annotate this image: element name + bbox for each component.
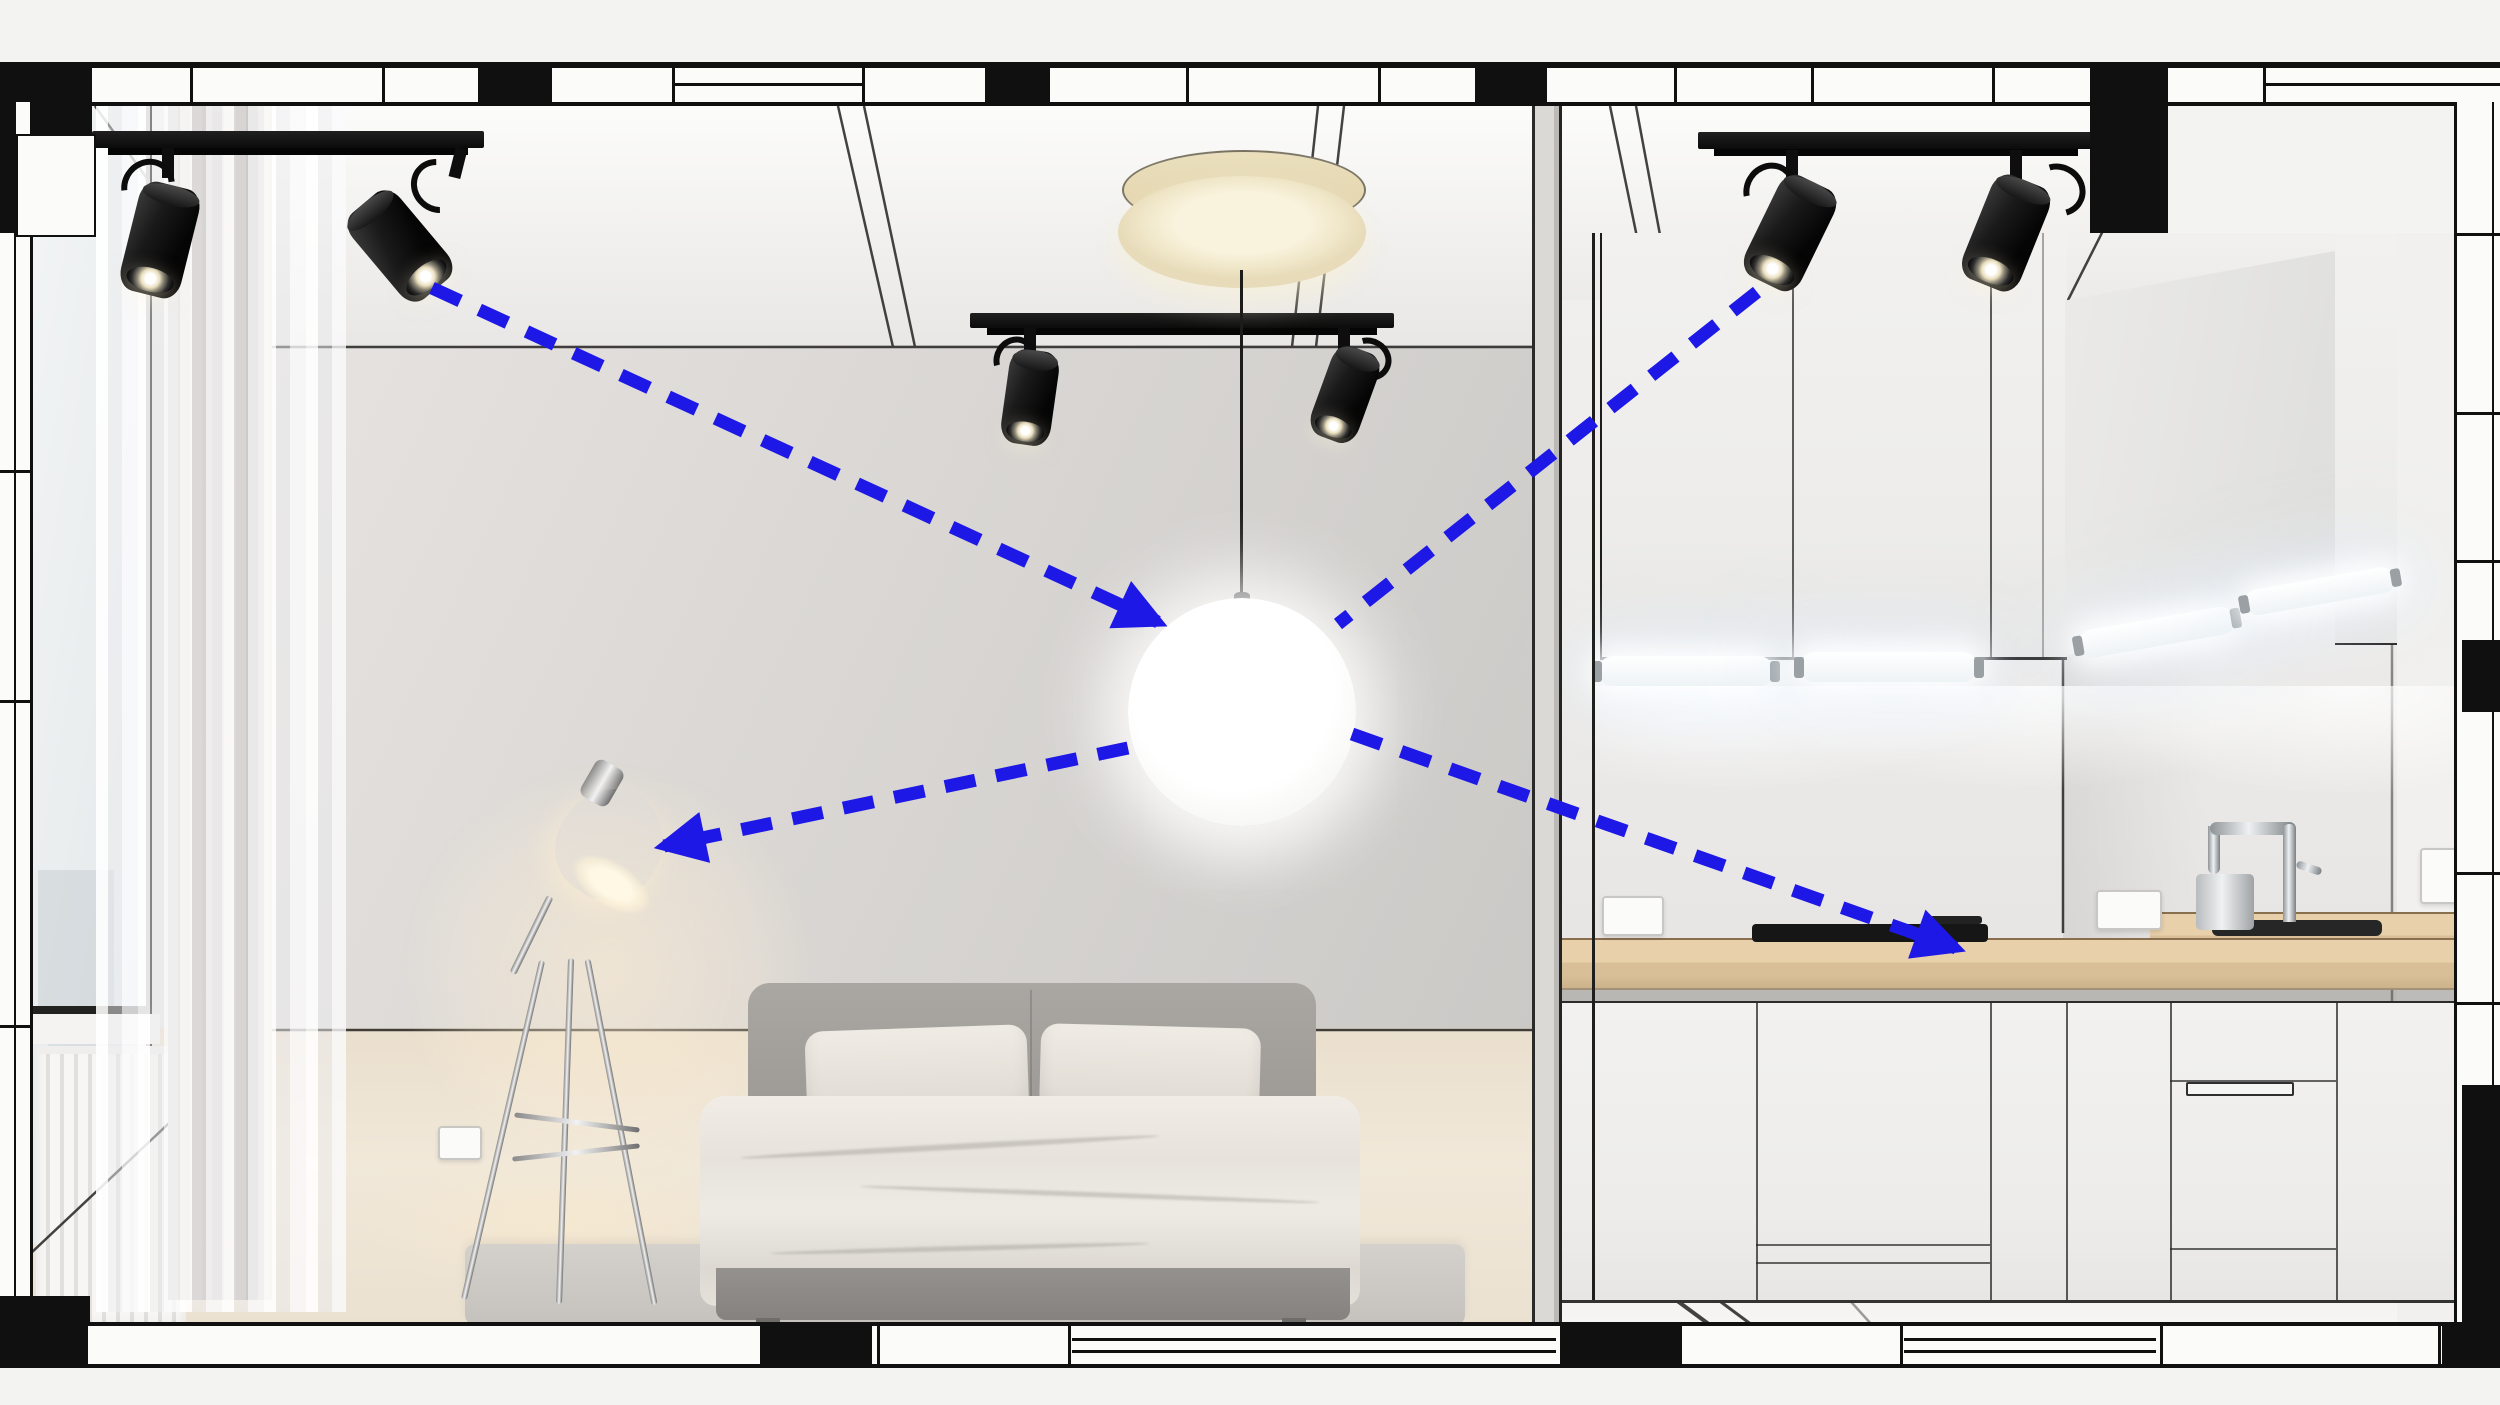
plan-window-symbol [2263, 83, 2500, 86]
plan-window-symbol [1904, 1338, 2156, 1341]
plan-wall-segment [478, 68, 552, 102]
plan-window-symbol [672, 83, 862, 86]
plan-wall-segment [2442, 1326, 2500, 1364]
plan-window-head [16, 134, 96, 237]
arrow-track-spotlight-kitchen-left-to-globe-pendant [1338, 292, 1757, 624]
margin-cover [2168, 106, 2462, 233]
plan-wall-left [0, 102, 33, 1326]
plan-wall-segment [760, 1326, 872, 1364]
arrow-globe-pendant-to-floor-lamp [664, 748, 1128, 846]
arrow-track-spotlight-bedroom-right-to-globe-pendant [432, 288, 1158, 622]
plan-wall-segment [2090, 62, 2168, 233]
plan-wall-segment [1475, 68, 1547, 102]
plan-wall-inner-line [14, 233, 16, 1296]
plan-wall-segment [2462, 640, 2500, 712]
plan-wall-bottom [0, 1326, 2500, 1368]
plan-wall-segment [1560, 1326, 1682, 1364]
arrow-globe-pendant-to-kitchen-cooktop [1352, 734, 1956, 948]
plan-wall-segment [985, 68, 1050, 102]
plan-window-symbol [1904, 1350, 2156, 1353]
lighting-concept-image [0, 0, 2500, 1405]
plan-wall-segment [0, 1326, 88, 1364]
plan-wall-segment [0, 102, 16, 233]
plan-window-symbol [1072, 1350, 1556, 1353]
plan-window-symbol [1072, 1338, 1556, 1341]
